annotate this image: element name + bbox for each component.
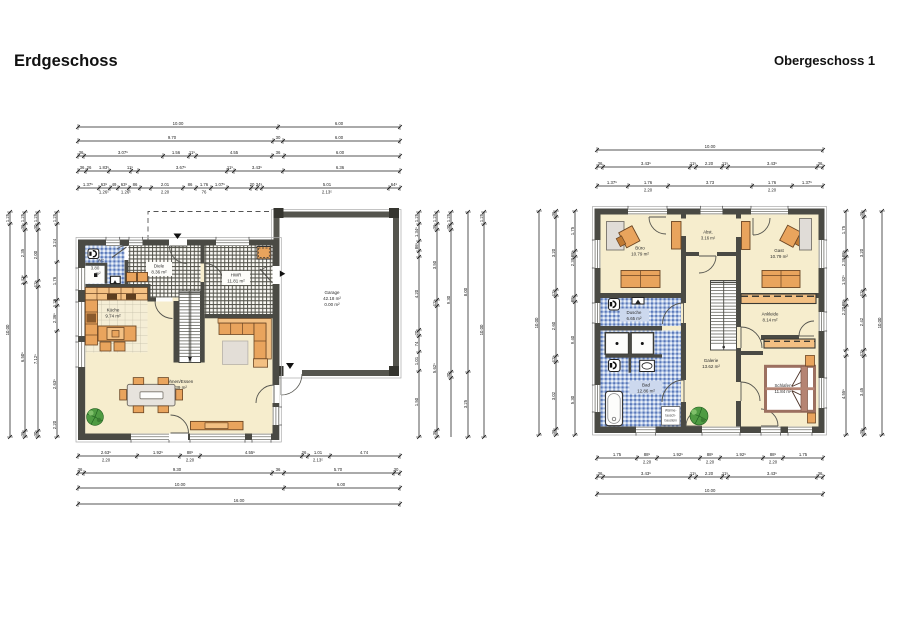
svg-text:2.20: 2.20 <box>705 161 714 166</box>
svg-text:11⁵: 11⁵ <box>722 471 728 476</box>
svg-text:Obergeschoss 1: Obergeschoss 1 <box>774 53 875 68</box>
svg-text:10.00: 10.00 <box>5 324 10 335</box>
svg-text:HWR: HWR <box>231 273 242 278</box>
svg-text:12.86 m²: 12.86 m² <box>637 388 655 393</box>
svg-text:Abst.: Abst. <box>703 230 713 235</box>
svg-text:36: 36 <box>551 429 556 434</box>
svg-text:74: 74 <box>414 341 419 346</box>
svg-text:1.50: 1.50 <box>414 397 419 406</box>
svg-text:36: 36 <box>598 161 603 166</box>
svg-text:Galerie: Galerie <box>704 358 719 363</box>
svg-text:6.65 m²: 6.65 m² <box>627 316 642 321</box>
svg-text:6.50⁵: 6.50⁵ <box>20 352 25 362</box>
svg-text:12⁵: 12⁵ <box>859 290 864 297</box>
svg-text:13.62 m²: 13.62 m² <box>702 364 720 369</box>
svg-text:3.20: 3.20 <box>859 248 864 257</box>
svg-text:3.50: 3.50 <box>432 260 437 269</box>
svg-text:36: 36 <box>20 431 25 436</box>
svg-text:63⁵: 63⁵ <box>121 182 128 187</box>
svg-text:Ankleide: Ankleide <box>762 312 779 317</box>
svg-text:tausch-: tausch- <box>665 414 676 418</box>
svg-text:10.00: 10.00 <box>705 488 716 493</box>
svg-text:11⁵: 11⁵ <box>127 165 133 170</box>
svg-text:30: 30 <box>394 467 399 472</box>
svg-text:5.30: 5.30 <box>570 395 575 404</box>
svg-text:1.76: 1.76 <box>52 276 57 285</box>
svg-text:12⁵: 12⁵ <box>859 350 864 357</box>
svg-text:Büro: Büro <box>635 246 645 251</box>
svg-text:3.25: 3.25 <box>463 399 468 408</box>
svg-text:11⁵: 11⁵ <box>690 161 696 166</box>
svg-text:Küche: Küche <box>107 308 120 313</box>
svg-text:10.00: 10.00 <box>175 482 186 487</box>
svg-text:1.92⁵: 1.92⁵ <box>736 452 746 457</box>
svg-text:6.00: 6.00 <box>337 482 346 487</box>
svg-text:Diele: Diele <box>154 264 165 269</box>
svg-text:8.36 m²: 8.36 m² <box>151 270 167 275</box>
svg-text:3.43⁵: 3.43⁵ <box>252 165 262 170</box>
svg-text:9.70: 9.70 <box>168 135 177 140</box>
svg-text:9.30: 9.30 <box>446 295 451 304</box>
svg-text:36: 36 <box>432 430 437 435</box>
svg-text:1.01: 1.01 <box>414 356 419 365</box>
svg-text:2.20: 2.20 <box>841 306 846 315</box>
svg-text:6.00: 6.00 <box>335 121 344 126</box>
svg-text:36: 36 <box>276 150 281 155</box>
svg-text:2.63⁵: 2.63⁵ <box>101 450 111 455</box>
svg-text:34⁵: 34⁵ <box>256 182 263 187</box>
svg-text:1.76: 1.76 <box>768 180 777 185</box>
svg-text:1.25: 1.25 <box>20 213 25 222</box>
svg-text:11⁵: 11⁵ <box>227 165 233 170</box>
svg-text:1.26⁵: 1.26⁵ <box>121 190 131 195</box>
svg-text:63⁵: 63⁵ <box>101 182 108 187</box>
svg-text:4.20: 4.20 <box>414 289 419 298</box>
svg-text:1.25: 1.25 <box>414 213 419 222</box>
svg-text:5.62⁵: 5.62⁵ <box>432 363 437 373</box>
svg-text:Dusche: Dusche <box>627 310 642 315</box>
svg-text:1.56: 1.56 <box>172 150 181 155</box>
svg-text:8.00: 8.00 <box>463 287 468 296</box>
svg-text:1.25: 1.25 <box>446 213 451 222</box>
svg-text:3.45: 3.45 <box>859 387 864 396</box>
svg-text:36: 36 <box>78 467 83 472</box>
svg-text:2.20: 2.20 <box>186 458 195 463</box>
svg-text:20: 20 <box>414 330 419 335</box>
svg-text:76: 76 <box>202 190 207 195</box>
svg-text:9.30: 9.30 <box>173 467 182 472</box>
svg-text:3.07⁵: 3.07⁵ <box>118 150 128 155</box>
svg-text:10.00: 10.00 <box>877 317 882 328</box>
svg-text:2.00: 2.00 <box>33 250 38 259</box>
svg-text:2.20: 2.20 <box>768 188 777 193</box>
svg-text:36: 36 <box>598 471 603 476</box>
svg-text:1.75: 1.75 <box>799 452 808 457</box>
svg-text:1.26: 1.26 <box>52 298 57 307</box>
svg-text:2.20: 2.20 <box>161 190 170 195</box>
svg-text:9.40: 9.40 <box>570 335 575 344</box>
svg-text:8.14 m²: 8.14 m² <box>763 318 778 323</box>
svg-text:86: 86 <box>133 182 138 187</box>
svg-text:baustein: baustein <box>664 418 677 422</box>
svg-text:1.75: 1.75 <box>841 225 846 234</box>
svg-text:6.00: 6.00 <box>335 135 344 140</box>
svg-text:11⁵: 11⁵ <box>722 161 728 166</box>
svg-text:30: 30 <box>33 431 38 436</box>
svg-text:10.79 m²: 10.79 m² <box>770 254 788 259</box>
svg-text:1.92⁵: 1.92⁵ <box>841 275 846 285</box>
svg-text:1.41⁵: 1.41⁵ <box>20 275 25 285</box>
svg-text:3.43⁵: 3.43⁵ <box>767 471 777 476</box>
svg-text:26: 26 <box>302 450 307 455</box>
svg-text:36: 36 <box>818 161 823 166</box>
svg-text:4.55⁵: 4.55⁵ <box>245 450 255 455</box>
svg-text:1.01: 1.01 <box>314 450 323 455</box>
svg-text:2.63⁵: 2.63⁵ <box>52 379 57 389</box>
svg-text:12⁵: 12⁵ <box>551 356 556 363</box>
svg-text:88⁵: 88⁵ <box>841 300 846 307</box>
svg-text:Gast: Gast <box>774 248 784 253</box>
svg-text:Garage: Garage <box>324 290 340 295</box>
svg-text:1.25: 1.25 <box>33 213 38 222</box>
svg-text:36: 36 <box>20 224 25 229</box>
svg-text:30: 30 <box>33 224 38 229</box>
svg-text:30: 30 <box>446 372 451 377</box>
svg-text:1.25: 1.25 <box>432 213 437 222</box>
svg-text:64⁵: 64⁵ <box>391 182 398 187</box>
svg-text:3.80: 3.80 <box>91 266 100 271</box>
svg-text:2.13⁵: 2.13⁵ <box>322 190 332 195</box>
svg-text:12⁵: 12⁵ <box>432 300 437 307</box>
svg-text:4.55: 4.55 <box>230 150 239 155</box>
svg-text:1.76: 1.76 <box>644 180 653 185</box>
svg-text:Erdgeschoss: Erdgeschoss <box>14 52 118 70</box>
svg-text:5.01: 5.01 <box>323 182 332 187</box>
svg-text:1.83⁵: 1.83⁵ <box>99 165 109 170</box>
svg-text:88⁵: 88⁵ <box>570 251 575 258</box>
svg-text:7.12⁵: 7.12⁵ <box>33 354 38 364</box>
svg-text:2.01: 2.01 <box>161 182 170 187</box>
svg-text:2.20: 2.20 <box>643 460 652 465</box>
svg-text:5.70: 5.70 <box>334 467 343 472</box>
svg-text:36: 36 <box>818 471 823 476</box>
svg-text:11⁵: 11⁵ <box>690 471 696 476</box>
svg-text:49: 49 <box>112 182 117 187</box>
svg-text:2.20: 2.20 <box>644 188 653 193</box>
svg-text:36: 36 <box>859 211 864 216</box>
svg-text:36: 36 <box>79 150 84 155</box>
svg-text:2.20: 2.20 <box>52 420 57 429</box>
svg-text:Bad: Bad <box>642 382 651 387</box>
svg-text:30: 30 <box>276 135 281 140</box>
svg-text:3.43⁵: 3.43⁵ <box>641 161 651 166</box>
svg-text:1.25: 1.25 <box>52 213 57 222</box>
svg-text:12⁵: 12⁵ <box>551 290 556 297</box>
svg-text:1.07⁵: 1.07⁵ <box>215 182 225 187</box>
svg-text:36: 36 <box>432 224 437 229</box>
svg-text:42.18 m²: 42.18 m² <box>323 296 341 301</box>
svg-text:88⁵: 88⁵ <box>770 452 777 457</box>
svg-text:1.92⁵: 1.92⁵ <box>153 450 163 455</box>
svg-text:10.00: 10.00 <box>705 144 716 149</box>
svg-text:3.43⁵: 3.43⁵ <box>767 161 777 166</box>
svg-text:3.20: 3.20 <box>551 248 556 257</box>
svg-text:1.76: 1.76 <box>200 182 209 187</box>
svg-text:Schlafen: Schlafen <box>774 383 792 388</box>
svg-text:4.74: 4.74 <box>360 450 369 455</box>
svg-text:2.20: 2.20 <box>769 460 778 465</box>
svg-text:3.43⁵: 3.43⁵ <box>641 471 651 476</box>
svg-text:3.02: 3.02 <box>551 391 556 400</box>
svg-text:36: 36 <box>80 165 85 170</box>
svg-text:11.84 m²: 11.84 m² <box>774 389 792 394</box>
svg-text:6.36: 6.36 <box>336 165 345 170</box>
svg-text:86⁵: 86⁵ <box>414 243 419 250</box>
svg-text:16.00: 16.00 <box>234 498 245 503</box>
svg-text:2.13⁵: 2.13⁵ <box>313 458 323 463</box>
svg-text:2.39: 2.39 <box>841 257 846 266</box>
svg-text:2.20: 2.20 <box>102 458 111 463</box>
svg-text:2.42: 2.42 <box>859 317 864 326</box>
svg-text:88⁵: 88⁵ <box>841 251 846 258</box>
svg-text:2.60: 2.60 <box>551 321 556 330</box>
svg-text:3.16 m²: 3.16 m² <box>701 235 716 240</box>
svg-text:36: 36 <box>276 467 281 472</box>
svg-text:20: 20 <box>250 182 255 187</box>
svg-text:36: 36 <box>551 211 556 216</box>
svg-text:10.00: 10.00 <box>173 121 184 126</box>
svg-text:88⁵: 88⁵ <box>707 452 714 457</box>
svg-text:30: 30 <box>446 224 451 229</box>
svg-text:2.20: 2.20 <box>706 460 715 465</box>
svg-text:26: 26 <box>87 165 92 170</box>
svg-text:2.20: 2.20 <box>705 471 714 476</box>
svg-text:1.75: 1.75 <box>570 226 575 235</box>
svg-text:6.00: 6.00 <box>336 150 345 155</box>
svg-text:10.00: 10.00 <box>479 324 484 335</box>
svg-text:1.37⁵: 1.37⁵ <box>802 180 812 185</box>
svg-text:10.79 m²: 10.79 m² <box>631 252 649 257</box>
svg-text:88⁵: 88⁵ <box>644 452 651 457</box>
svg-text:3.24: 3.24 <box>52 238 57 247</box>
svg-text:1.26⁵: 1.26⁵ <box>99 190 109 195</box>
svg-text:Wärme-: Wärme- <box>665 409 677 413</box>
svg-text:1.25: 1.25 <box>479 213 484 222</box>
svg-text:2.35: 2.35 <box>20 248 25 257</box>
svg-text:11.81 m²: 11.81 m² <box>227 279 245 284</box>
svg-text:2.36⁵: 2.36⁵ <box>52 313 57 323</box>
svg-text:1.34⁵: 1.34⁵ <box>414 227 419 237</box>
svg-text:12⁵: 12⁵ <box>33 281 38 288</box>
svg-text:0.00 m²: 0.00 m² <box>324 302 340 307</box>
svg-text:10.00: 10.00 <box>534 317 539 328</box>
svg-text:11⁵: 11⁵ <box>189 150 195 155</box>
svg-text:4.55⁵: 4.55⁵ <box>841 389 846 399</box>
svg-text:88⁵: 88⁵ <box>187 450 194 455</box>
svg-text:2.39: 2.39 <box>570 257 575 266</box>
svg-text:86: 86 <box>188 182 193 187</box>
svg-text:1.25: 1.25 <box>5 213 10 222</box>
svg-text:3.73: 3.73 <box>706 180 715 185</box>
svg-text:9.74 m²: 9.74 m² <box>105 314 121 319</box>
svg-text:88⁵: 88⁵ <box>570 296 575 303</box>
svg-text:36: 36 <box>859 429 864 434</box>
svg-text:1.92⁵: 1.92⁵ <box>673 452 683 457</box>
svg-text:1.37⁵: 1.37⁵ <box>607 180 617 185</box>
svg-text:3.67⁵: 3.67⁵ <box>176 165 186 170</box>
svg-text:1.75: 1.75 <box>613 452 622 457</box>
svg-text:1.37⁵: 1.37⁵ <box>83 182 93 187</box>
